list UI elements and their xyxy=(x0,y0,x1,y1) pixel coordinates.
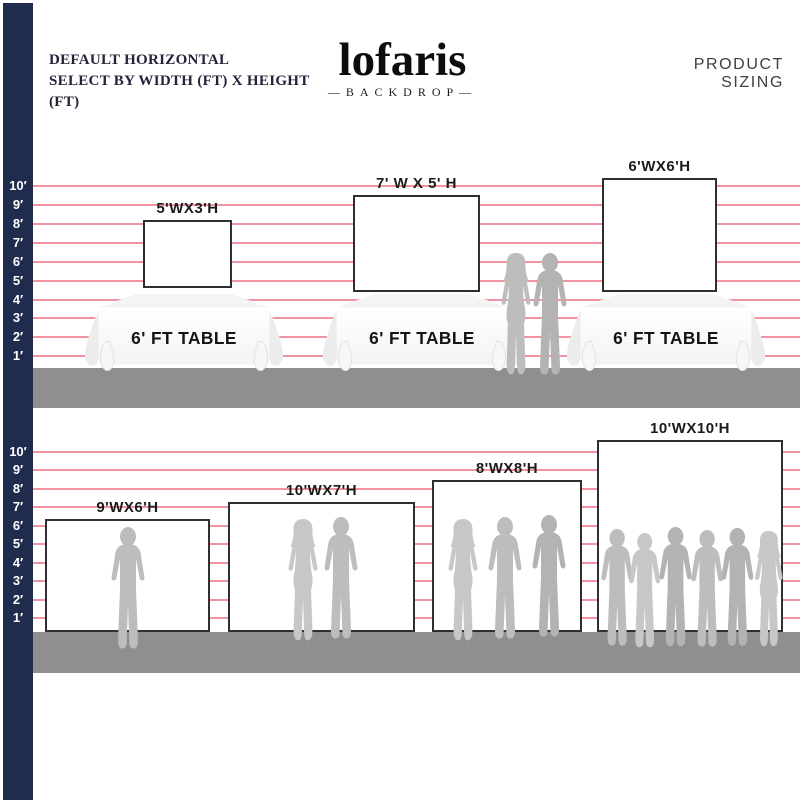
header-title-line1: DEFAULT HORIZONTAL xyxy=(49,50,329,71)
ruler-label: 4′ xyxy=(3,554,33,572)
backdrop-label: 6'WX6'H xyxy=(557,158,762,175)
backdrop-label: 7' W X 5' H xyxy=(308,175,525,192)
ruler-label: 6′ xyxy=(3,517,33,535)
banquet-table: 6' FT TABLE xyxy=(566,292,766,372)
backdrop-label: 9'WX6'H xyxy=(0,499,255,516)
header-title-line2: SELECT BY WIDTH (FT) X HEIGHT (FT) xyxy=(49,71,329,113)
ruler-label: 3′ xyxy=(3,572,33,590)
ruler-label: 3′ xyxy=(3,309,33,327)
table-label: 6' FT TABLE xyxy=(369,328,475,348)
product-sizing-title: PRODUCT SIZING xyxy=(628,56,784,92)
people-silhouette-trio xyxy=(441,514,571,642)
ruler-label: 5′ xyxy=(3,272,33,290)
banquet-table: 6' FT TABLE xyxy=(84,292,284,372)
backdrop-label: 10'WX10'H xyxy=(552,420,800,437)
backdrop-label: 5'WX3'H xyxy=(98,200,277,217)
ruler-label: 10′ xyxy=(3,177,33,195)
ruler-label: 7′ xyxy=(3,234,33,252)
brand-tagline: —BACKDROP— xyxy=(295,85,510,100)
ruler-label: 8′ xyxy=(3,215,33,233)
ruler-label: 7′ xyxy=(3,498,33,516)
product-sizing-page: DEFAULT HORIZONTAL SELECT BY WIDTH (FT) … xyxy=(0,0,800,800)
ruler-label: 5′ xyxy=(3,535,33,553)
people-silhouette-couple xyxy=(281,516,365,642)
ruler-label: 1′ xyxy=(3,347,33,365)
backdrop-label: 8'WX8'H xyxy=(387,460,627,477)
ruler-label: 6′ xyxy=(3,253,33,271)
ruler-label: 9′ xyxy=(3,196,33,214)
table-label: 6' FT TABLE xyxy=(131,328,237,348)
ruler-bar xyxy=(3,3,33,800)
ruler-label: 8′ xyxy=(3,480,33,498)
backdrop-rect xyxy=(602,178,717,292)
people-silhouette-couple-top xyxy=(494,252,572,376)
header-title: DEFAULT HORIZONTAL SELECT BY WIDTH (FT) … xyxy=(49,50,329,113)
backdrop-7x5: 7' W X 5' H xyxy=(353,195,480,292)
backdrop-6x6: 6'WX6'H xyxy=(602,178,717,292)
ruler-label: 1′ xyxy=(3,609,33,627)
ruler-label: 2′ xyxy=(3,591,33,609)
backdrop-5x3: 5'WX3'H xyxy=(143,220,232,288)
brand-logo: lofaris —BACKDROP— xyxy=(295,36,510,100)
brand-name: lofaris xyxy=(295,36,510,84)
ruler-label: 9′ xyxy=(3,461,33,479)
people-silhouette-group xyxy=(596,526,788,648)
banquet-table: 6' FT TABLE xyxy=(322,292,522,372)
backdrop-label: 10'WX7'H xyxy=(183,482,460,499)
backdrop-rect xyxy=(143,220,232,288)
floor-strip-top xyxy=(33,368,800,408)
ruler-label: 10′ xyxy=(3,443,33,461)
backdrop-rect xyxy=(353,195,480,292)
ruler-label: 4′ xyxy=(3,291,33,309)
people-silhouette-man xyxy=(104,524,152,650)
table-label: 6' FT TABLE xyxy=(613,328,719,348)
ruler-label: 2′ xyxy=(3,328,33,346)
